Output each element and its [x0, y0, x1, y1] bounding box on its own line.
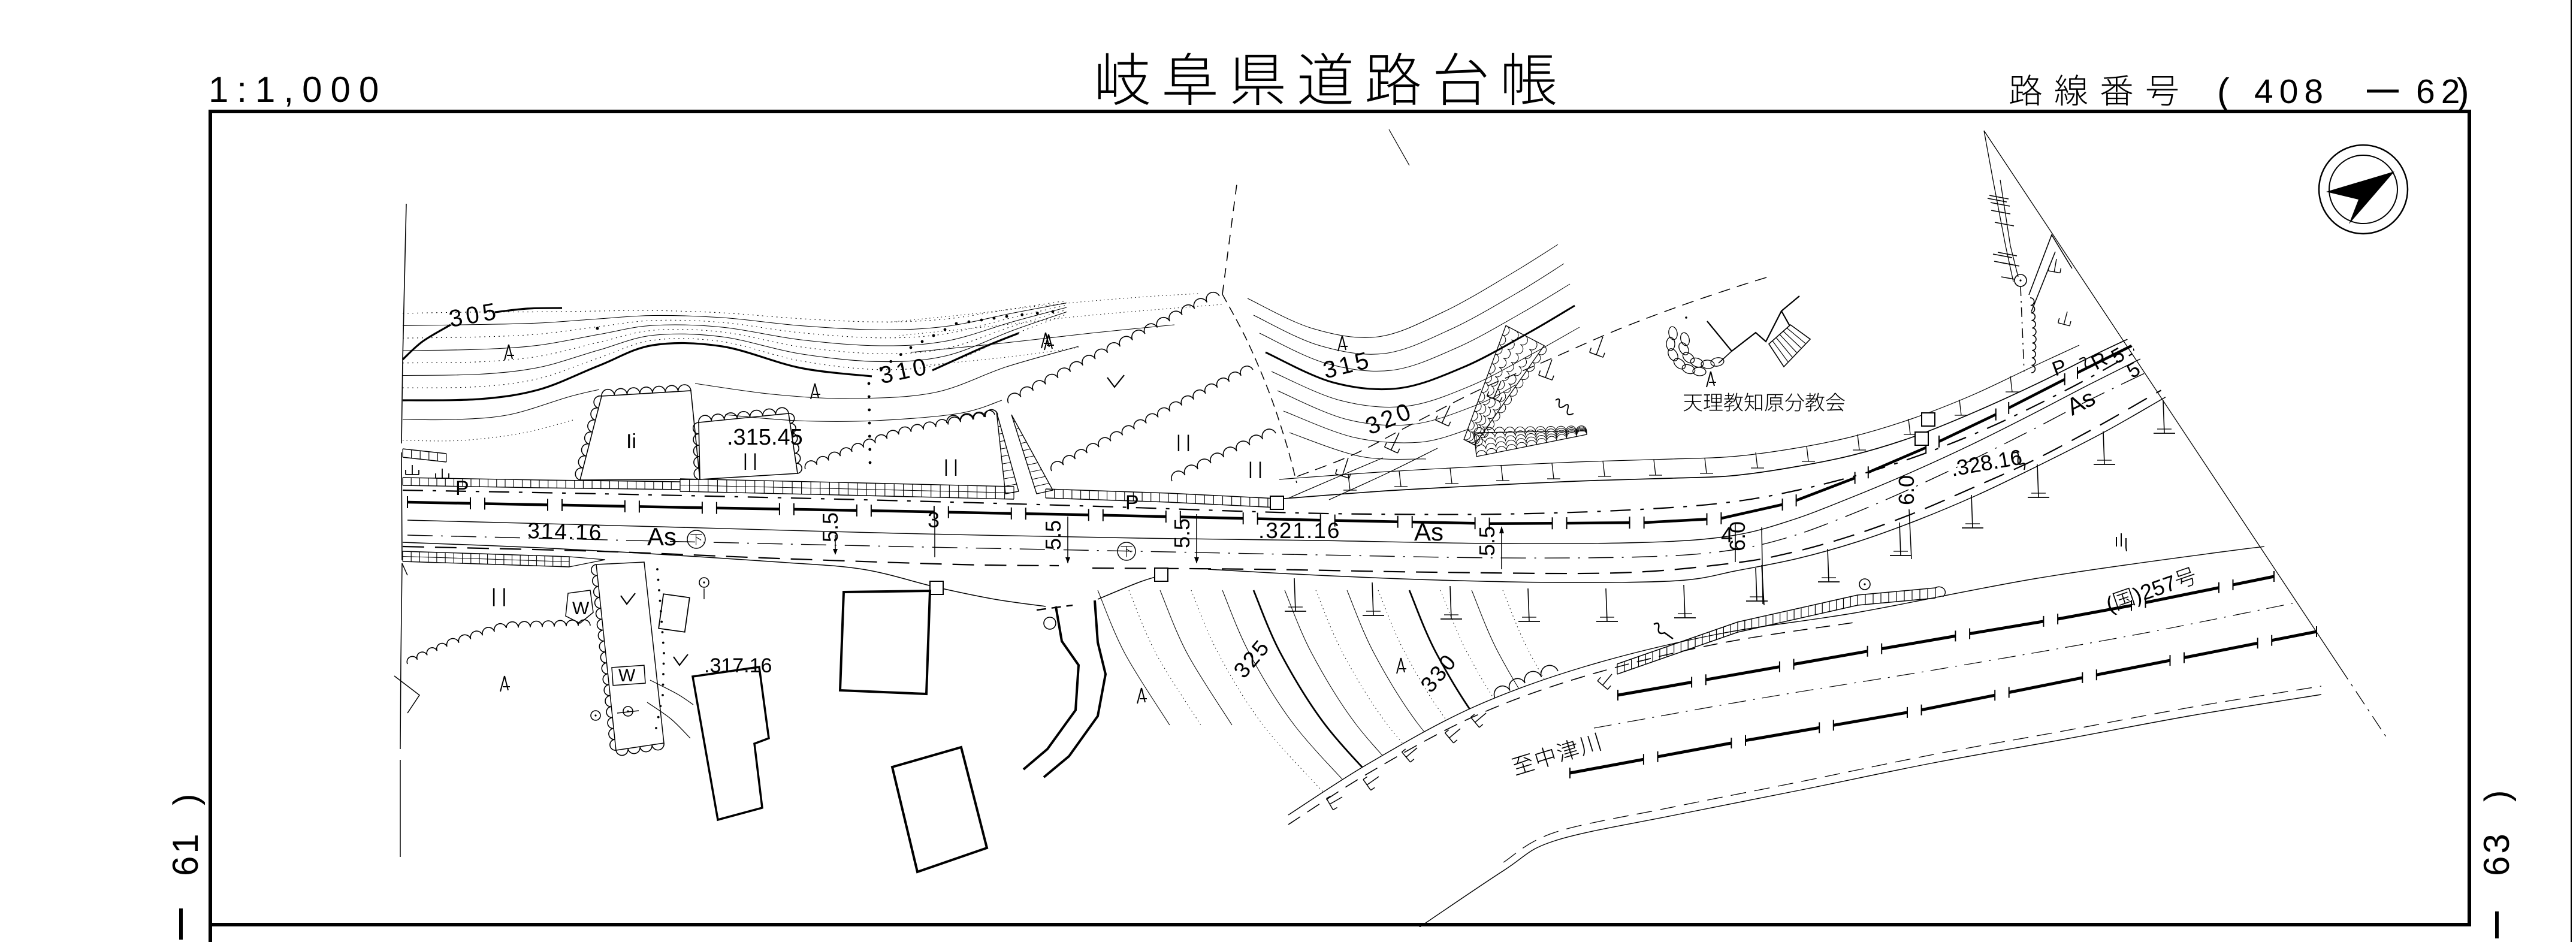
- svg-text:.315.45: .315.45: [727, 425, 803, 450]
- svg-text:6.0: 6.0: [1894, 475, 1919, 505]
- svg-text:| |: | |: [491, 585, 507, 606]
- svg-text:5.5: 5.5: [818, 512, 842, 542]
- svg-text:): ): [167, 794, 206, 805]
- svg-text:61: 61: [165, 831, 206, 876]
- svg-text:1:1,000: 1:1,000: [209, 70, 387, 110]
- svg-text:W: W: [572, 599, 590, 618]
- svg-text:| |: | |: [944, 457, 958, 476]
- svg-text:5.5: 5.5: [1041, 520, 1065, 550]
- svg-text:): ): [2457, 71, 2469, 113]
- svg-text:5.5: 5.5: [1170, 518, 1194, 548]
- svg-text:As: As: [1414, 518, 1443, 546]
- svg-text:W: W: [618, 666, 636, 686]
- svg-text:6.0: 6.0: [1725, 521, 1750, 551]
- svg-text:5.5: 5.5: [1475, 526, 1499, 556]
- svg-text:(: (: [2217, 71, 2230, 113]
- svg-text:63: 63: [2477, 831, 2517, 876]
- svg-text:): ): [2478, 790, 2517, 802]
- svg-text:P: P: [1125, 491, 1139, 514]
- svg-text:3: 3: [928, 508, 940, 532]
- svg-text:| |: | |: [1248, 459, 1263, 479]
- svg-text:| |: | |: [1176, 432, 1191, 452]
- svg-text:P: P: [455, 477, 469, 500]
- svg-text:| |: | |: [743, 451, 757, 470]
- svg-text:Ii: Ii: [626, 430, 636, 453]
- svg-text:314.16: 314.16: [527, 518, 603, 545]
- svg-text:408: 408: [2254, 73, 2329, 111]
- svg-text:.321.16: .321.16: [1258, 518, 1340, 543]
- svg-text:As: As: [647, 523, 677, 551]
